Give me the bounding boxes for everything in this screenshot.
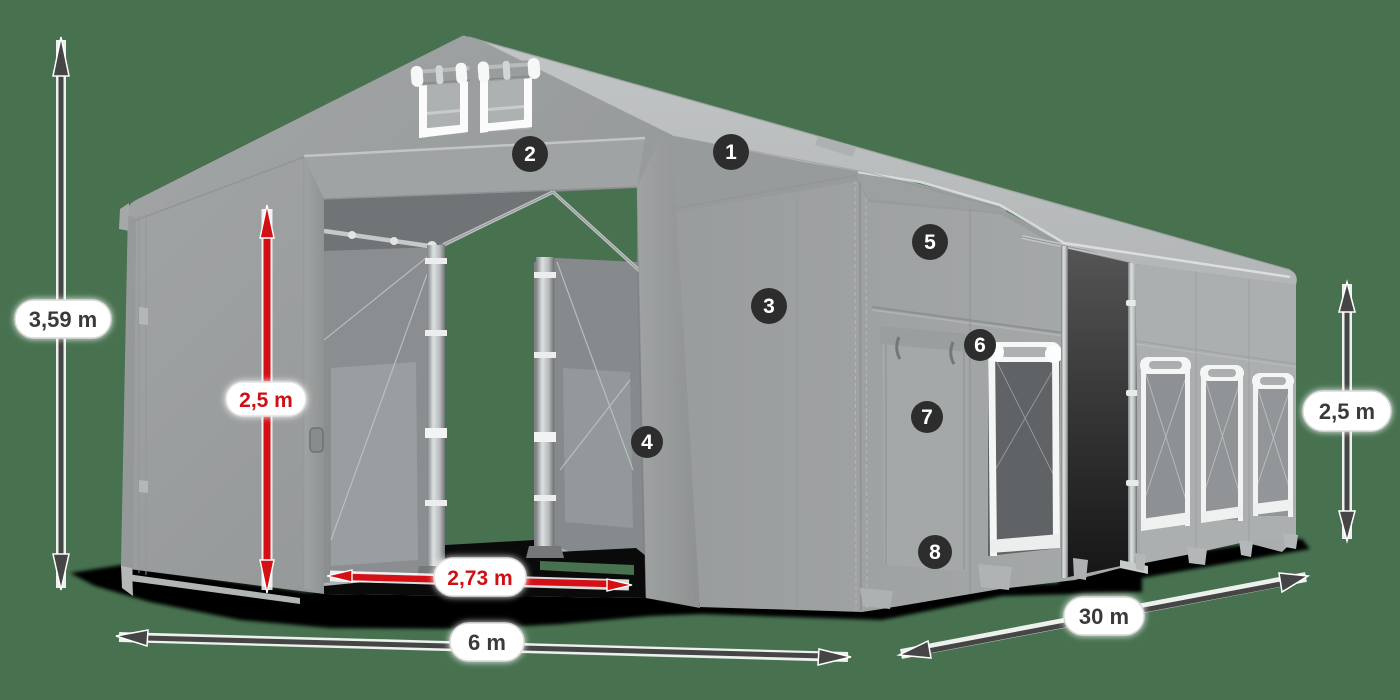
svg-text:2,73 m: 2,73 m bbox=[447, 567, 512, 590]
svg-text:2,5 m: 2,5 m bbox=[1319, 399, 1375, 424]
svg-text:8: 8 bbox=[929, 541, 941, 564]
svg-text:6 m: 6 m bbox=[468, 630, 506, 655]
svg-text:4: 4 bbox=[641, 431, 653, 454]
svg-text:3,59 m: 3,59 m bbox=[29, 307, 98, 332]
svg-text:30 m: 30 m bbox=[1079, 604, 1129, 629]
svg-text:5: 5 bbox=[924, 231, 936, 254]
svg-text:2: 2 bbox=[524, 143, 536, 166]
svg-text:6: 6 bbox=[974, 334, 986, 357]
svg-text:7: 7 bbox=[921, 406, 933, 429]
svg-text:1: 1 bbox=[725, 141, 737, 164]
svg-text:2,5 m: 2,5 m bbox=[239, 389, 293, 412]
svg-text:3: 3 bbox=[763, 295, 775, 318]
